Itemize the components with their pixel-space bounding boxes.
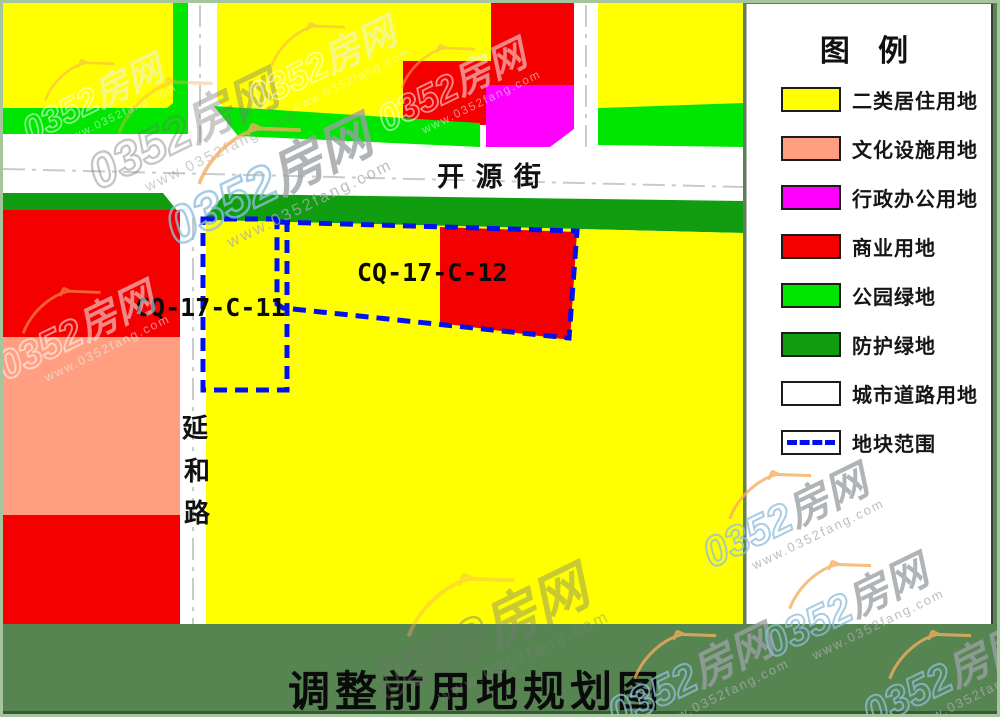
protective-green-swatch: [781, 332, 841, 357]
urban-road-swatch: [781, 381, 841, 406]
legend-row-protective-green: 防护绿地: [781, 331, 991, 357]
watermark-url: www.0352fang.com: [909, 644, 1000, 717]
legend-label: 防护绿地: [852, 330, 936, 359]
legend-label: 商业用地: [852, 232, 936, 261]
parcel-admin-office: [486, 85, 574, 147]
page-title: 调整前用地规划图: [288, 658, 664, 717]
legend-row-commercial: 商业用地: [781, 233, 991, 259]
plot-label-cq-17-c-12: CQ-17-C-12: [357, 258, 508, 287]
residential-swatch: [781, 87, 841, 112]
bottom-edge-strip: [0, 711, 1000, 717]
car-logo-icon: [875, 614, 977, 683]
legend-label: 文化设施用地: [852, 134, 978, 163]
legend-row-park-green: 公园绿地: [781, 282, 991, 308]
legend-label: 二类居住用地: [852, 85, 978, 114]
plot-boundary-swatch: [781, 430, 841, 455]
parcel-park-green-ne: [598, 103, 743, 147]
plot-label-cq-17-c-11: CQ-17-C-11: [135, 293, 286, 322]
planning-map-screen: 开 源 街 延 和 路 CQ-17-C-11 CQ-17-C-12 图 例 二类…: [0, 0, 1000, 717]
plot-boundary-dash-icon: [787, 440, 835, 445]
legend-row-admin-office: 行政办公用地: [781, 184, 991, 210]
road-label-yanhe-char1: 延: [181, 413, 209, 443]
parcel-commercial-north-a: [491, 3, 574, 85]
legend-list: 二类居住用地 文化设施用地 行政办公用地 商业用地 公园绿地 防护绿地: [747, 86, 991, 455]
parcel-cultural-west: [3, 337, 180, 515]
map-canvas: 开 源 街 延 和 路 CQ-17-C-11 CQ-17-C-12: [3, 3, 743, 624]
legend-panel: 图 例 二类居住用地 文化设施用地 行政办公用地 商业用地 公园绿地: [746, 4, 993, 624]
parcel-residential-nw: [3, 3, 173, 108]
road-label-yanhe-char2: 和: [184, 456, 210, 486]
watermark-cn: 房网: [684, 617, 780, 696]
legend-label: 城市道路用地: [852, 379, 978, 408]
legend-row-urban-road: 城市道路用地: [781, 380, 991, 406]
parcel-commercial-north-b: [403, 61, 491, 125]
legend-title: 图 例: [747, 26, 991, 70]
legend-row-plot-boundary: 地块范围: [781, 429, 991, 455]
commercial-swatch: [781, 234, 841, 259]
legend-row-residential: 二类居住用地: [781, 86, 991, 112]
admin-office-swatch: [781, 185, 841, 210]
legend-label: 地块范围: [852, 428, 936, 457]
parcel-residential-ne: [598, 3, 743, 108]
watermark-url: www.0352fang.com: [654, 644, 815, 717]
legend-label: 行政办公用地: [852, 183, 978, 212]
legend-label: 公园绿地: [852, 281, 936, 310]
legend-row-cultural: 文化设施用地: [781, 135, 991, 161]
land-use-map: 开 源 街 延 和 路 CQ-17-C-11 CQ-17-C-12: [3, 3, 743, 624]
watermark-number: 0352: [855, 653, 960, 717]
park-green-swatch: [781, 283, 841, 308]
watermark-cn: 房网: [939, 617, 1000, 696]
cultural-swatch: [781, 136, 841, 161]
parcel-commercial-west-lower: [3, 515, 180, 624]
street-label-kaiyuan: 开 源 街: [437, 162, 543, 192]
road-label-yanhe-char3: 路: [184, 498, 211, 528]
